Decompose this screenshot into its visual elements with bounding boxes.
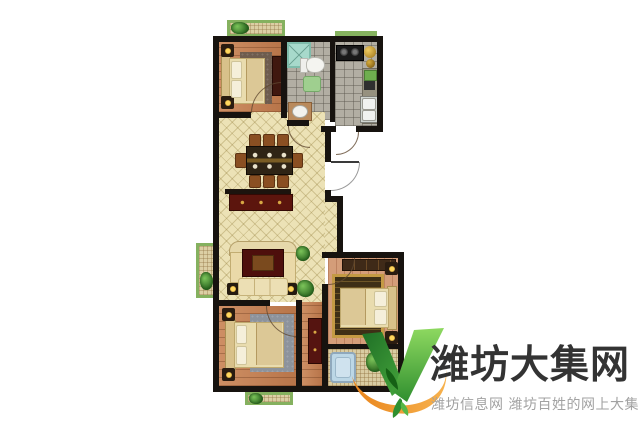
watermark-subtitle: 潍坊信息网 潍坊百姓的网上大集 [431, 397, 636, 414]
wall-bath-bottom [287, 120, 309, 126]
bedroom-tl-pillow-2 [231, 80, 242, 98]
bedroom-bl-nightstand-lamp-1 [222, 308, 235, 321]
sink-basin-1 [362, 98, 376, 110]
stove-burner-1 [340, 48, 348, 56]
bedroom-br-pillow-1 [374, 291, 387, 307]
balcony-top-plant [231, 22, 249, 34]
wall-bedroom-br-left [322, 284, 328, 386]
entrance-door-leaf [331, 161, 359, 163]
screenshot-canvas: { "watermark": { "title": "潍坊大集网", "subt… [0, 0, 640, 426]
bath-mat [303, 76, 321, 92]
wall-top [213, 36, 383, 42]
wall-bath-kitchen-divider [330, 42, 335, 122]
bedroom-br-pillow-2 [374, 309, 387, 325]
wall-bedroom-tl-right [281, 42, 287, 118]
balcony-bottom-plant [249, 393, 263, 404]
hallway-wardrobe [308, 318, 322, 364]
watermark-title: 潍坊大集网 [430, 344, 636, 388]
dining-chair-5 [263, 175, 275, 188]
wall-entry-jog-v [337, 202, 343, 252]
balcony-top [227, 20, 285, 37]
counter-item [364, 81, 375, 90]
wall-bedroom-br-top [322, 252, 404, 258]
kitchen-door-arc [336, 132, 359, 155]
wall-dining-right-upper [325, 132, 331, 162]
coffee-table [252, 255, 274, 271]
entry-floor-strip [325, 202, 337, 252]
bedroom-bl-pillow-2 [236, 346, 247, 365]
bedroom-br-blanket [341, 289, 366, 325]
wall-bedroom-bl-top [213, 300, 270, 306]
bedroom-tl-nightstand-lamp-1 [221, 44, 234, 57]
wall-left [213, 36, 219, 392]
bedroom-br-nightstand-lamp-1 [385, 262, 398, 275]
entrance-door-arc [331, 162, 360, 191]
sink-basin-2 [362, 110, 376, 121]
wall-bedroom-tl-bottom [213, 112, 251, 118]
bedroom-bl-nightstand-lamp-2 [222, 368, 235, 381]
dining-table [246, 146, 293, 175]
gold-pot-2 [366, 59, 375, 68]
sofa [238, 278, 288, 296]
gold-pot-1 [364, 46, 376, 58]
living-plant-2 [297, 280, 314, 297]
balcony-bottom [245, 392, 293, 405]
vanity-basin [292, 105, 308, 118]
cutting-board [364, 70, 377, 81]
stove-burner-2 [351, 48, 359, 56]
wall-bedroom-bl-right [296, 300, 302, 386]
balcony-left-plant [200, 272, 213, 290]
bathtub-inner [335, 357, 351, 378]
sideboard [229, 194, 293, 211]
bedroom-bl-pillow-1 [236, 325, 247, 344]
wall-under-kitchen-right [356, 126, 383, 132]
dining-chair-6 [277, 175, 289, 188]
wall-kitchen-right [377, 36, 383, 132]
living-plant-1 [296, 246, 310, 261]
dining-chair-4 [249, 175, 261, 188]
toilet-bowl [306, 57, 325, 73]
bedroom-tl-pillow-1 [231, 61, 242, 79]
